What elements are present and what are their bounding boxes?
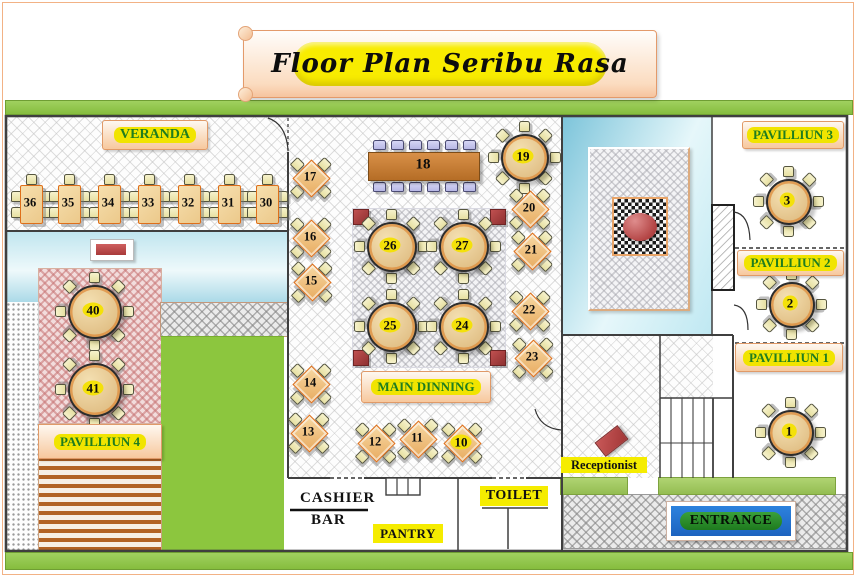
planter	[353, 209, 369, 225]
bar-label: BAR	[311, 512, 346, 529]
main-dining-label: MAIN DINNING	[361, 371, 491, 403]
fountain-sphere	[623, 213, 657, 241]
fountain	[612, 197, 668, 256]
toilet-label: TOILET	[480, 486, 548, 506]
planter	[490, 350, 506, 366]
entrance-hedge-left	[560, 477, 628, 495]
terrace-bench-cushion	[96, 244, 126, 255]
top-green-bar	[5, 100, 853, 115]
title-banner: Floor Plan Seribu Rasa	[243, 30, 657, 98]
pavilion-corridor	[713, 116, 847, 478]
entrance-label: ENTRANCE	[680, 512, 783, 530]
pavilliun2-label: PAVILLIUN 2	[737, 250, 844, 276]
veranda-label: VERANDA	[102, 120, 208, 150]
planter	[490, 209, 506, 225]
bottom-green-bar	[5, 552, 853, 570]
stone-walkway	[160, 302, 290, 337]
pavilliun1-label: PAVILLIUN 1	[735, 343, 843, 372]
planter	[353, 350, 369, 366]
terrace-bench	[90, 239, 134, 261]
grass-area	[161, 336, 284, 552]
receptionist-label: Receptionist	[561, 457, 647, 473]
pantry-label: PANTRY	[373, 524, 443, 543]
cashier-label: CASHIER	[300, 490, 375, 507]
floor-plan-page: Floor Plan Seribu Rasa	[0, 0, 856, 577]
page-title: Floor Plan Seribu Rasa	[271, 49, 629, 79]
pavilliun4-carpet	[38, 268, 162, 424]
entrance-sign: ENTRANCE	[666, 501, 796, 541]
pavilliun3-label: PAVILLIUN 3	[742, 121, 844, 149]
entrance-hedge-right	[658, 477, 836, 495]
pavilliun4-label: PAVILLIUN 4	[38, 424, 162, 459]
entrance-sign-panel: ENTRANCE	[671, 506, 791, 536]
wooden-deck	[38, 457, 162, 551]
gravel-path	[6, 302, 39, 551]
dining-carpet	[352, 208, 506, 368]
title-highlight: Floor Plan Seribu Rasa	[293, 42, 607, 86]
